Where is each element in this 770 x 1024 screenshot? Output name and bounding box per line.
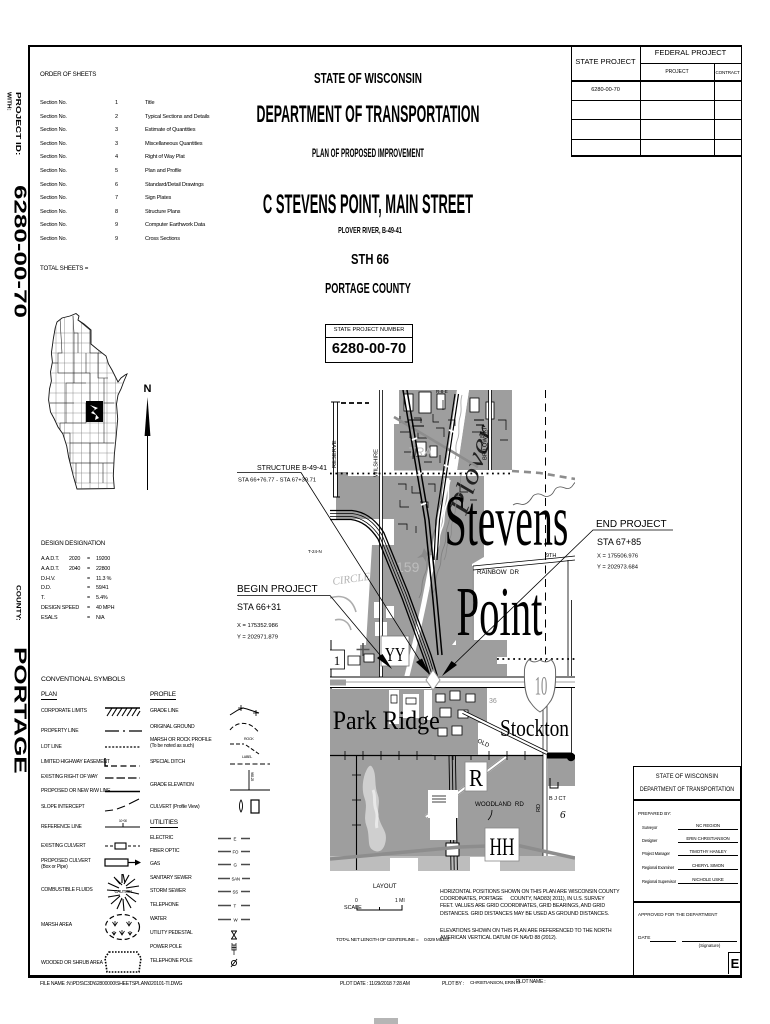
svg-text:CIRCLE: CIRCLE	[332, 571, 371, 588]
svg-text:WOODLAND RD: WOODLAND RD	[475, 801, 524, 808]
svg-text:Y = 202973.684: Y = 202973.684	[597, 565, 639, 571]
svg-text:1 MI: 1 MI	[395, 898, 405, 904]
svg-text:RD: RD	[536, 804, 542, 812]
svg-text:SS: SS	[233, 890, 239, 895]
svg-text:R-8-E: R-8-E	[436, 389, 448, 394]
svg-text:6: 6	[560, 809, 566, 821]
svg-text:36: 36	[489, 698, 497, 705]
svg-text:Stevens: Stevens	[445, 480, 569, 561]
svg-text:STA 66+31: STA 66+31	[237, 602, 281, 612]
svg-text:CAUTION: CAUTION	[115, 889, 133, 894]
svg-text:Stockton: Stockton	[500, 716, 569, 742]
svg-text:X = 175352.986: X = 175352.986	[237, 623, 278, 629]
svg-text:10: 10	[535, 672, 548, 701]
svg-text:T-24-N: T-24-N	[308, 549, 322, 554]
svg-text:1: 1	[334, 653, 341, 668]
svg-text:N: N	[144, 383, 152, 395]
svg-text:RESERVE: RESERVE	[332, 440, 338, 468]
svg-text:10+00: 10+00	[119, 819, 127, 823]
svg-text:STA 67+85: STA 67+85	[597, 537, 641, 547]
svg-text:STRUCTURE B-49-41: STRUCTURE B-49-41	[257, 465, 327, 472]
svg-text:TRA: TRA	[408, 445, 432, 459]
svg-text:BEGIN PROJECT: BEGIN PROJECT	[237, 584, 318, 595]
svg-text:0: 0	[355, 898, 358, 904]
svg-text:Park Ridge: Park Ridge	[333, 706, 440, 735]
svg-text:W: W	[234, 918, 239, 923]
svg-text:HH: HH	[490, 834, 515, 861]
svg-text:BRILOWSKI: BRILOWSKI	[483, 427, 489, 460]
svg-text:X = 175506.976: X = 175506.976	[597, 554, 638, 560]
svg-text:Point: Point	[457, 574, 543, 651]
svg-text:B J CT: B J CT	[549, 796, 566, 802]
svg-text:Y = 202971.879: Y = 202971.879	[237, 635, 278, 641]
svg-text:R: R	[469, 766, 483, 792]
svg-text:T: T	[234, 904, 237, 909]
svg-text:OLD: OLD	[476, 738, 490, 749]
svg-text:END PROJECT: END PROJECT	[596, 519, 667, 530]
